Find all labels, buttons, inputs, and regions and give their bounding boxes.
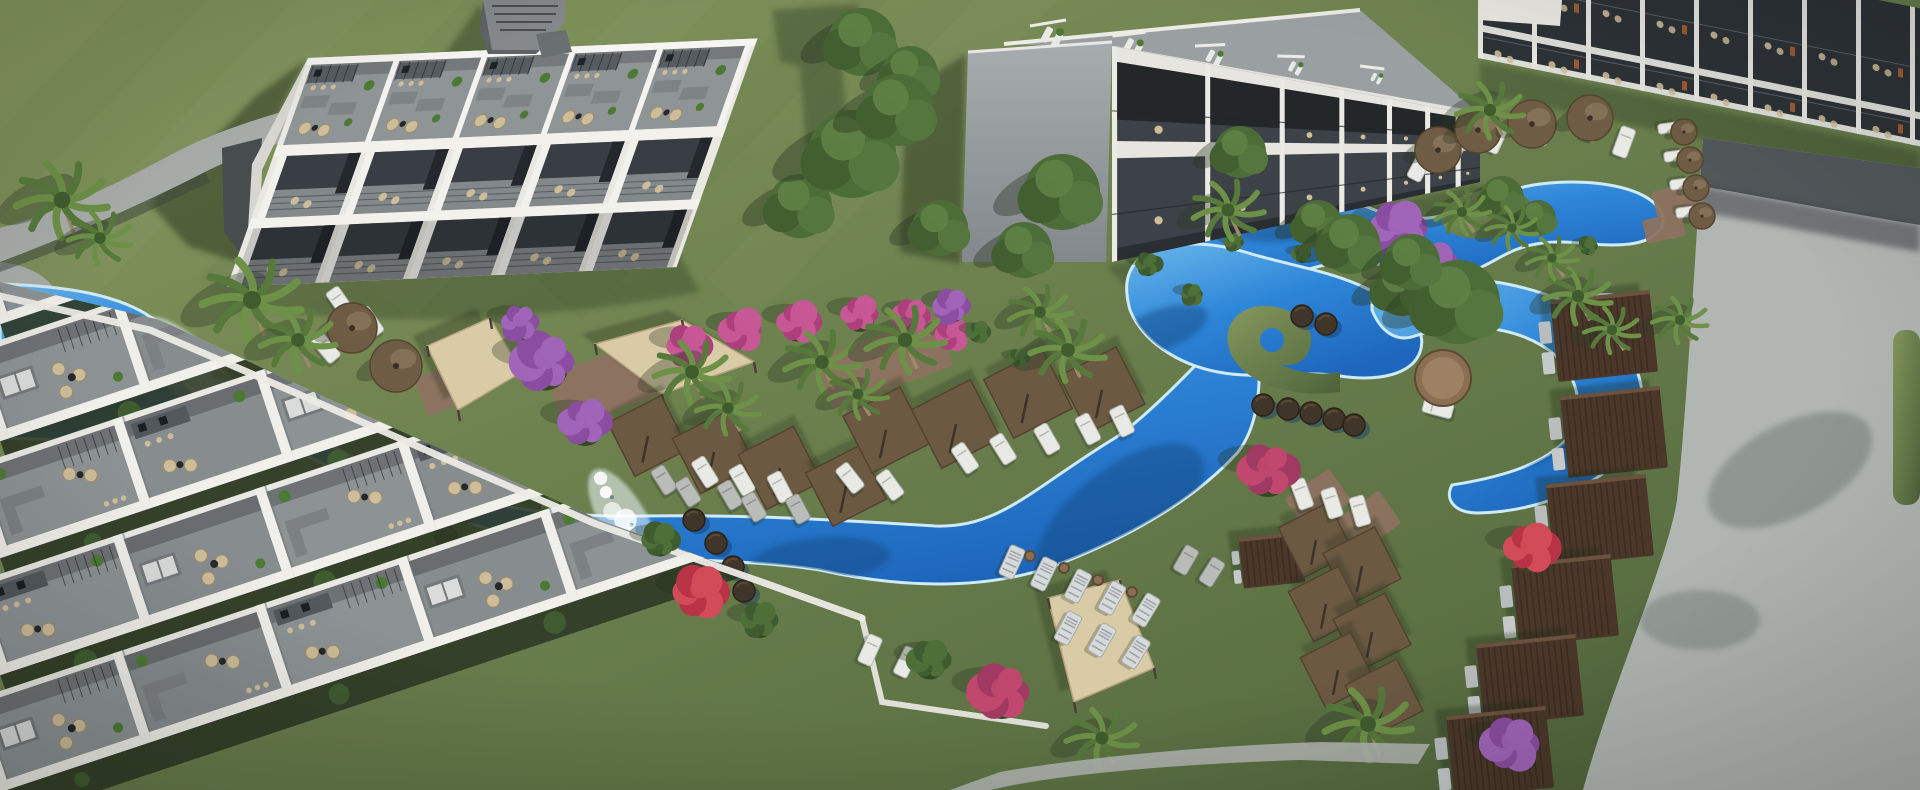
render-image: Aerial 3D architectural render of a reso… [0,0,1920,790]
vignette [0,0,1920,790]
aerial-render: Aerial 3D architectural render of a reso… [0,0,1920,790]
